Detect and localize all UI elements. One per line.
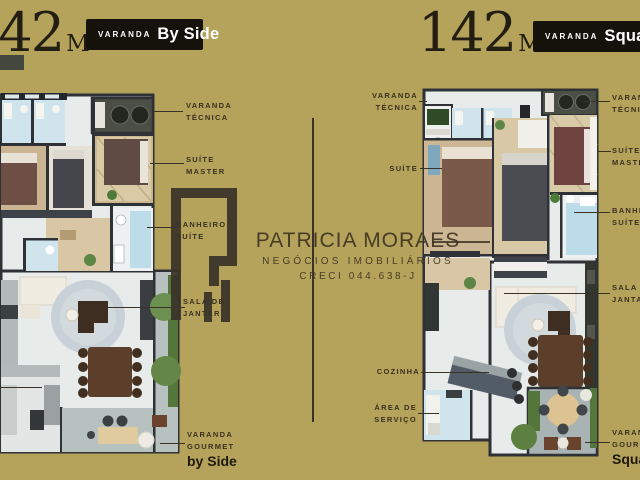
- right-badge-name: Square: [604, 27, 640, 46]
- label-line: VARANDA: [187, 429, 237, 441]
- leader-line: [160, 443, 185, 444]
- right-area-title: 142M2: [418, 6, 549, 60]
- flyer-background: 142M2 142M2 VARANDA By Side VARANDA Squa…: [0, 0, 640, 480]
- label-right-suite: SUÍTE: [330, 163, 418, 175]
- left-badge-name: By Side: [157, 25, 219, 44]
- patricia-moraes-logo: [171, 188, 249, 322]
- left-plan-badge: VARANDA By Side: [86, 19, 203, 50]
- label-right-varanda-tecnica-left: VARANDA TÉCNICA: [330, 90, 418, 114]
- label-right-sala-jantar: SALA DE JANTAR: [612, 282, 640, 306]
- leader-line: [574, 212, 610, 213]
- label-line: VARANDA: [612, 427, 640, 439]
- left-top-bathrooms: [1, 93, 67, 146]
- leader-line: [419, 101, 427, 102]
- label-line: JANTAR: [612, 294, 640, 306]
- center-divider-line: [312, 118, 314, 422]
- label-left-varanda-gourmet: VARANDA GOURMET by Side: [187, 429, 237, 467]
- watermark-license: CRECI 044.638-J: [250, 271, 466, 282]
- left-kitchen: [1, 365, 63, 452]
- label-line: BANHEIRO: [612, 205, 640, 217]
- leader-line: [420, 168, 442, 169]
- leader-line: [585, 442, 610, 443]
- label-line: VARANDA: [612, 92, 640, 104]
- label-line: TÉCNICA: [330, 102, 418, 114]
- right-middle-suite: [494, 115, 550, 260]
- leader-line: [584, 101, 610, 102]
- label-line: ÁREA DE: [327, 402, 417, 414]
- label-line: TÉCNICA: [186, 112, 232, 124]
- label-line: GOURMET: [187, 441, 237, 453]
- label-line: GOURMET: [612, 439, 640, 451]
- label-line: SUÍTE: [186, 154, 225, 166]
- left-area-title: 142M2: [0, 6, 97, 60]
- label-line: SUÍTE: [612, 145, 640, 157]
- label-line: COZINHA: [330, 366, 420, 378]
- label-line: MASTER: [612, 157, 640, 169]
- label-right-cozinha: COZINHA: [330, 366, 420, 378]
- right-area-servico: [424, 390, 473, 440]
- watermark-dash: [432, 241, 490, 243]
- label-left-suite-master: SUÍTE MASTER: [186, 154, 225, 178]
- label-left-varanda-tecnica: VARANDA TÉCNICA: [186, 100, 232, 124]
- watermark-subtitle: NEGÓCIOS IMOBILIÁRIOS: [250, 256, 466, 267]
- label-line: MASTER: [186, 166, 225, 178]
- label-right-banheiro-suite: BANHEIRO SUÍTE: [612, 205, 640, 229]
- right-area-value: 142: [418, 1, 515, 64]
- leader-line: [598, 151, 611, 152]
- left-banheiro-suite: [110, 206, 153, 271]
- right-banheiro-suite: [560, 193, 597, 258]
- left-varanda-tecnica: [92, 98, 153, 133]
- right-badge-prefix: VARANDA: [545, 32, 598, 41]
- right-plan-badge: VARANDA Square: [533, 21, 640, 52]
- right-varanda-tecnica-right: [542, 90, 597, 115]
- label-right-suite-master: SUÍTE MASTER: [612, 145, 640, 169]
- leader-line: [150, 163, 184, 164]
- label-line: SALA DE: [612, 282, 640, 294]
- label-line: VARANDA: [186, 100, 232, 112]
- left-bedrooms: [1, 143, 92, 218]
- leader-line: [504, 293, 610, 294]
- label-emphasis: Square: [612, 453, 640, 465]
- label-emphasis: by Side: [187, 455, 237, 467]
- leader-line-clipped: [0, 387, 42, 388]
- label-line: TÉCNICA: [612, 104, 640, 116]
- left-badge-prefix: VARANDA: [98, 30, 151, 39]
- leader-line: [418, 413, 439, 414]
- label-line: SERVIÇO: [327, 414, 417, 426]
- leader-line: [153, 111, 183, 112]
- label-line: VARANDA: [330, 90, 418, 102]
- label-line: SUÍTE: [330, 163, 418, 175]
- label-right-varanda-gourmet: VARANDA GOURMET Square: [612, 427, 640, 465]
- left-area-value: 142: [0, 1, 63, 64]
- leader-line: [421, 372, 489, 373]
- label-right-varanda-tecnica-right: VARANDA TÉCNICA: [612, 92, 640, 116]
- label-right-area-servico: ÁREA DE SERVIÇO: [327, 402, 417, 426]
- right-suite-master: [550, 115, 597, 203]
- label-line: SUÍTE: [612, 217, 640, 229]
- floor-plan-left-illustration: [0, 55, 185, 457]
